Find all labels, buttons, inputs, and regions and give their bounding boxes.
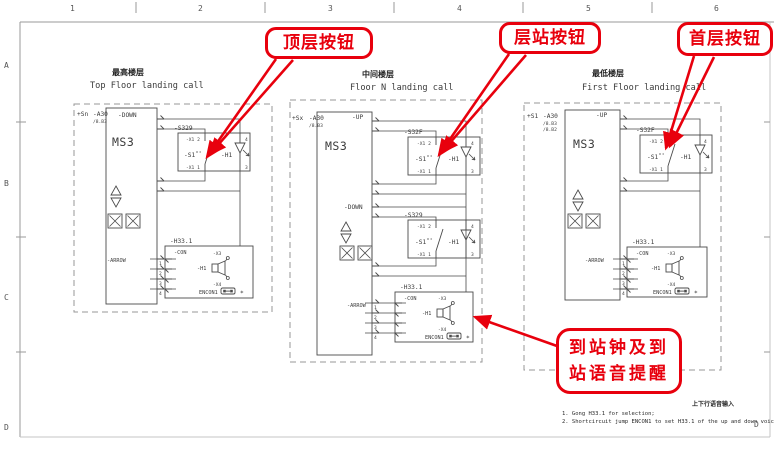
gong-unit-label: -H33.1 [400, 284, 423, 291]
terminal: -X3 [667, 251, 676, 257]
jumper-icon [221, 288, 235, 294]
column-label: 6 [714, 4, 719, 13]
controller-label: MS3 [112, 135, 134, 149]
direction-arrows-icon [573, 202, 583, 211]
jumper-label: ENCON1 [425, 335, 444, 341]
callout-text: 层站按钮 [514, 25, 586, 51]
terminal: 3 [704, 167, 707, 173]
terminal: 4 [471, 224, 474, 230]
device-ref: -A30 [93, 111, 108, 118]
note-line-1: 1. Gong H33.1 for selection; [562, 411, 655, 417]
device-crossref: /8.B3 [543, 121, 557, 127]
footnote-mark: * [466, 335, 470, 342]
callout-text-line1: 到站钟及到 [569, 335, 669, 361]
row-label-b: B [4, 179, 9, 188]
switch-label: -S1 [184, 152, 195, 159]
amp-label: -H1 [651, 266, 660, 272]
amp-label: -H1 [422, 311, 431, 317]
callout-arrow [439, 54, 509, 155]
controller-label: MS3 [573, 137, 595, 151]
pin-number: 1 [622, 261, 625, 267]
callout-text-line2: 站语音提醒 [569, 361, 669, 387]
callout-top-floor-button: 顶层按钮 [265, 27, 373, 59]
row-label-c: C [4, 293, 9, 302]
pin-number: 3 [374, 325, 377, 331]
lamp-label: -H1 [448, 239, 459, 246]
unit-label: -S329 [174, 125, 193, 132]
schematic-drawing-page: 1 2 3 4 5 6 A B C D D 最高楼层 Top Floor lan… [0, 0, 774, 449]
floor-display-icon [358, 246, 372, 260]
terminal: -X1 2 [649, 139, 663, 145]
unit-label: -S329 [404, 212, 423, 219]
terminal: -X1 2 [417, 224, 431, 230]
floor-display-icon [340, 246, 354, 260]
direction-arrows-icon [341, 222, 351, 231]
switch-label: -S1 [415, 156, 426, 163]
connector-label: -CON [636, 251, 649, 257]
jumper-label: ENCON1 [199, 290, 218, 296]
controller-label: MS3 [325, 139, 347, 153]
terminal: 4 [245, 137, 248, 143]
gong-unit-label: -H33.1 [632, 239, 655, 246]
arrow-connector-label: -ARROW [347, 303, 367, 309]
terminal: -X1 1 [649, 167, 663, 173]
callout-arrow [210, 60, 293, 154]
pin-wires [613, 259, 638, 289]
terminal: 3 [245, 165, 248, 171]
switch-label: -S1 [415, 239, 426, 246]
panel-title-en: First Floor landing call [582, 83, 706, 93]
callout-arrow [475, 317, 557, 346]
callout-first-floor-button: 首层按钮 [677, 22, 773, 56]
floor-display-icon [108, 214, 122, 228]
section-ref: +Sx [292, 115, 303, 122]
note-cn: 上下行语音输入 [692, 400, 734, 408]
section-ref: +Sn [77, 111, 88, 118]
callout-arrow [207, 59, 276, 157]
pin-number: 4 [622, 291, 625, 297]
callout-arrows [207, 54, 714, 346]
panel-title-en: Top Floor landing call [90, 81, 204, 91]
speaker-icon [212, 257, 229, 280]
callout-text: 顶层按钮 [283, 30, 355, 56]
connector-label: -CON [404, 296, 417, 302]
pin-number: 2 [159, 271, 162, 277]
pin-number: 4 [159, 291, 162, 297]
direction-arrows-icon [573, 190, 583, 199]
jumper-label: ENCON1 [653, 290, 672, 296]
note-line-2: 2. Shortcircuit jump ENCON1 to set H33.1… [562, 419, 774, 425]
terminal: -X1 2 [417, 141, 431, 147]
notes: 上下行语音输入 1. Gong H33.1 for selection; 2. … [562, 400, 774, 425]
lamp-label: -H1 [680, 154, 691, 161]
callout-arrival-gong-voice: 到站钟及到 站语音提醒 [556, 328, 682, 394]
wires [620, 119, 700, 247]
amp-label: -H1 [197, 266, 206, 272]
unit-label: -S32F [404, 129, 423, 136]
switch-label: -S1 [647, 154, 658, 161]
unit-label: -S32F [636, 127, 655, 134]
panel-title-cn: 最低楼层 [592, 68, 624, 78]
terminal: -X1 1 [417, 252, 431, 258]
floor-display-icon [126, 214, 140, 228]
terminal: -X1 1 [186, 165, 200, 171]
callout-floor-n-button: 层站按钮 [499, 22, 601, 54]
row-label-d: D [4, 423, 9, 432]
speaker-icon [666, 257, 683, 280]
terminal: -X4 [438, 327, 447, 333]
direction-arrows-icon [111, 198, 121, 207]
callout-text: 首层按钮 [689, 26, 761, 52]
lamp-label: -H1 [221, 152, 232, 159]
panel-floor-n: 中间楼层 Floor N landing call +Sx -A30 /8.B3… [290, 69, 482, 362]
panel-first-floor: 最低楼层 First Floor landing call +S1 -A30 /… [524, 68, 721, 370]
callout-arrow [666, 56, 694, 148]
direction-label: -DOWN [344, 204, 363, 211]
footnote-mark: * [694, 290, 698, 297]
pin-wires [150, 259, 176, 289]
terminal: -X1 2 [186, 137, 200, 143]
terminal: -X3 [438, 296, 447, 302]
direction-arrows-icon [111, 186, 121, 195]
pin-wires [365, 303, 406, 333]
column-ticks [136, 2, 652, 13]
terminal: -X1 1 [417, 169, 431, 175]
column-label: 5 [586, 4, 591, 13]
panel-title-cn: 最高楼层 [112, 67, 144, 77]
speaker-icon [437, 302, 454, 325]
terminal: -X4 [213, 282, 222, 288]
direction-label: -DOWN [118, 112, 137, 119]
direction-arrows-icon [341, 234, 351, 243]
footnote-mark: * [240, 290, 244, 297]
terminal: 3 [471, 169, 474, 175]
terminal: 4 [704, 139, 707, 145]
terminal: 4 [471, 141, 474, 147]
device-ref: -A30 [309, 115, 324, 122]
indicator-lamp-symbol [695, 135, 709, 173]
arrow-connector-label: -ARROW [107, 258, 127, 264]
device-crossref: /8.B3 [309, 123, 323, 129]
panel-boundary [74, 104, 272, 312]
device-crossref: /8.B3 [93, 119, 107, 125]
terminal: -X4 [667, 282, 676, 288]
jumper-icon [675, 288, 689, 294]
row-label-a: A [4, 61, 9, 70]
pin-number: 2 [622, 271, 625, 277]
pin-number: 4 [374, 335, 377, 341]
floor-display-icon [568, 214, 582, 228]
jumper-icon [447, 333, 461, 339]
callout-arrow [670, 57, 714, 146]
pin-number: 3 [622, 281, 625, 287]
direction-label: -UP [596, 112, 607, 119]
column-label: 4 [457, 4, 462, 13]
lamp-label: -H1 [448, 156, 459, 163]
column-label: 3 [328, 4, 333, 13]
terminal: 3 [471, 252, 474, 258]
pin-number: 3 [159, 281, 162, 287]
pin-number: 1 [374, 305, 377, 311]
pin-number: 2 [374, 315, 377, 321]
gong-unit-label: -H33.1 [170, 238, 193, 245]
callout-arrow [442, 55, 526, 152]
panel-top-floor: 最高楼层 Top Floor landing call +Sn -A30 /8.… [74, 67, 272, 312]
terminal: -X3 [213, 251, 222, 257]
device-ref: -A30 [543, 113, 558, 120]
direction-label: -UP [352, 114, 363, 121]
column-label: 2 [198, 4, 203, 13]
arrow-connector-label: -ARROW [585, 258, 605, 264]
panel-title-en: Floor N landing call [350, 83, 453, 93]
floor-display-icon [586, 214, 600, 228]
device-crossref: /8.B2 [543, 127, 557, 133]
section-ref: +S1 [527, 113, 538, 120]
column-label: 1 [70, 4, 75, 13]
panel-title-cn: 中间楼层 [362, 69, 394, 79]
connector-label: -CON [174, 250, 187, 256]
pin-number: 1 [159, 261, 162, 267]
